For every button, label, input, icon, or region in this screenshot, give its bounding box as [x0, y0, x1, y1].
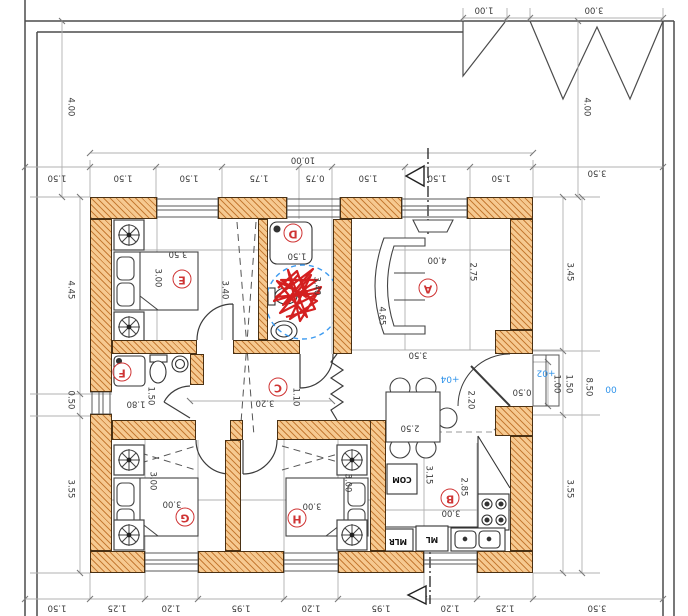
section-arrow-bottom-icon [408, 586, 426, 604]
room-label: A [419, 279, 438, 298]
dimension-label: 3.40 [312, 277, 321, 296]
dimension-label: 1.75 [250, 173, 269, 182]
dimension-label: 0.50 [66, 391, 75, 410]
tv-cabinet [413, 220, 453, 232]
wall-segment [90, 551, 145, 573]
wall-segment [467, 197, 533, 219]
window-top-e [157, 197, 218, 219]
dimension-label: 2.20 [466, 391, 475, 410]
appliance-label: ML [426, 535, 438, 543]
level-marker-label: 00 [605, 384, 616, 393]
dimension-label: 3.20 [256, 398, 275, 407]
dimension-label: 1.50 [48, 173, 67, 182]
room-label: E [173, 270, 192, 289]
dimension-label: 1.50 [428, 173, 447, 182]
opening-zigzag-icon [331, 354, 343, 420]
dimension-label: 0.50 [513, 387, 532, 396]
dimension-label: 1.00 [475, 5, 494, 14]
dimension-label: 3.50 [588, 168, 607, 177]
window-bottom-g [145, 551, 198, 573]
toilet-bowl [150, 361, 166, 383]
dimension-label: 1.50 [492, 173, 511, 182]
room-label: C [269, 378, 288, 397]
dimension-label: 3.50 [409, 350, 428, 359]
room-label: G [176, 508, 195, 527]
window-bottom-h [284, 551, 338, 573]
dimension-label: 3.00 [163, 499, 182, 508]
dimension-label: 3.40 [220, 281, 229, 300]
dimension-label: 3.00 [343, 474, 352, 493]
wall-segment [198, 551, 284, 573]
dimension-label: 2.85 [459, 478, 468, 497]
dimension-label: 3.00 [303, 501, 322, 510]
dimension-label: 4.45 [66, 281, 75, 300]
window-top-a [402, 197, 467, 219]
dimension-label: 1.95 [372, 603, 391, 612]
door-room-e [197, 304, 233, 340]
dimension-label: 1.20 [302, 603, 321, 612]
dimension-label: 4.00 [66, 98, 75, 117]
wall-segment [218, 197, 287, 219]
door-room-h [243, 440, 277, 474]
wall-segment [258, 219, 268, 340]
wall-segment [510, 219, 533, 330]
dimension-label: 3.00 [148, 472, 157, 491]
door-room-d [300, 354, 333, 388]
toilet-tank [268, 288, 275, 305]
room-label: H [288, 509, 307, 528]
wall-segment [190, 354, 204, 385]
wall-segment [90, 219, 112, 392]
dimension-label: 1.50 [114, 173, 133, 182]
room-label: D [284, 224, 303, 243]
dimension-label: 3.55 [565, 480, 574, 499]
wall-segment [370, 420, 386, 551]
dimension-label: 1.50 [564, 375, 573, 394]
level-marker-label: +02 [537, 368, 556, 377]
dimension-label: 4.00 [428, 255, 447, 264]
dimension-label: 10.00 [291, 155, 315, 164]
dimension-label: 1.20 [162, 603, 181, 612]
room-label: F [113, 363, 132, 382]
dimension-label: 1.50 [48, 603, 67, 612]
dimension-label: 2.50 [401, 423, 420, 432]
wall-segment [477, 551, 533, 573]
dimension-label: 1.25 [108, 603, 127, 612]
dimension-label: 3.55 [66, 480, 75, 499]
dimension-label: 8.50 [584, 378, 593, 397]
appliance-label: MLR [389, 537, 407, 545]
shower-drain [274, 226, 280, 232]
dimension-label: 3.00 [442, 508, 461, 517]
section-arrow-top-icon [406, 166, 424, 186]
wall-segment [233, 340, 300, 354]
wall-segment [90, 414, 112, 551]
dimension-label: 4.00 [582, 98, 591, 117]
dimension-label: 3.00 [585, 5, 604, 14]
dimension-label: 3.15 [424, 466, 433, 485]
wall-segment [112, 420, 196, 440]
wall-segment [225, 440, 241, 551]
wall-segment [90, 197, 157, 219]
pedestrian-gate-icon [463, 21, 505, 76]
window-left-f [90, 392, 112, 414]
dimension-label: 2.75 [468, 263, 477, 282]
dimension-label: 1.80 [127, 399, 146, 408]
dimension-label: 3.00 [153, 269, 162, 288]
dimension-label: 1.20 [441, 603, 460, 612]
dimension-label: 3.45 [565, 263, 574, 282]
gate-symbols [463, 21, 663, 99]
small-basin [172, 356, 188, 372]
dimension-label: 3.50 [169, 249, 188, 258]
wall-segment [338, 551, 424, 573]
wall-segment [510, 436, 533, 551]
dining-table [386, 378, 457, 458]
wall-segment [495, 330, 533, 354]
floor-plan: 1.003.0010.001.501.501.501.750.751.501.5… [0, 0, 688, 616]
level-marker-label: +04 [441, 374, 460, 383]
dimension-label: 1.50 [146, 387, 155, 406]
dimension-label: 1.50 [180, 173, 199, 182]
door-room-f [164, 386, 190, 418]
dimension-label: 1.95 [232, 603, 251, 612]
wall-segment [495, 406, 533, 436]
wall-segment [340, 197, 402, 219]
dimension-label: 1.25 [496, 603, 515, 612]
window-bottom-b [424, 551, 477, 573]
stove [478, 494, 509, 530]
wall-segment [230, 420, 243, 440]
room-label: B [441, 489, 460, 508]
appliance-label: COM [392, 475, 411, 483]
dimension-label: 1.10 [291, 388, 300, 407]
dimension-label: 1.50 [359, 173, 378, 182]
wall-segment [333, 219, 352, 354]
dimension-label: 1.50 [288, 251, 307, 260]
vehicle-gate-icon [530, 21, 663, 99]
dimension-label: 3.50 [588, 603, 607, 612]
dimension-label: 4.65 [377, 307, 386, 326]
dimension-label: 0.75 [306, 173, 325, 182]
wall-segment [112, 340, 197, 354]
